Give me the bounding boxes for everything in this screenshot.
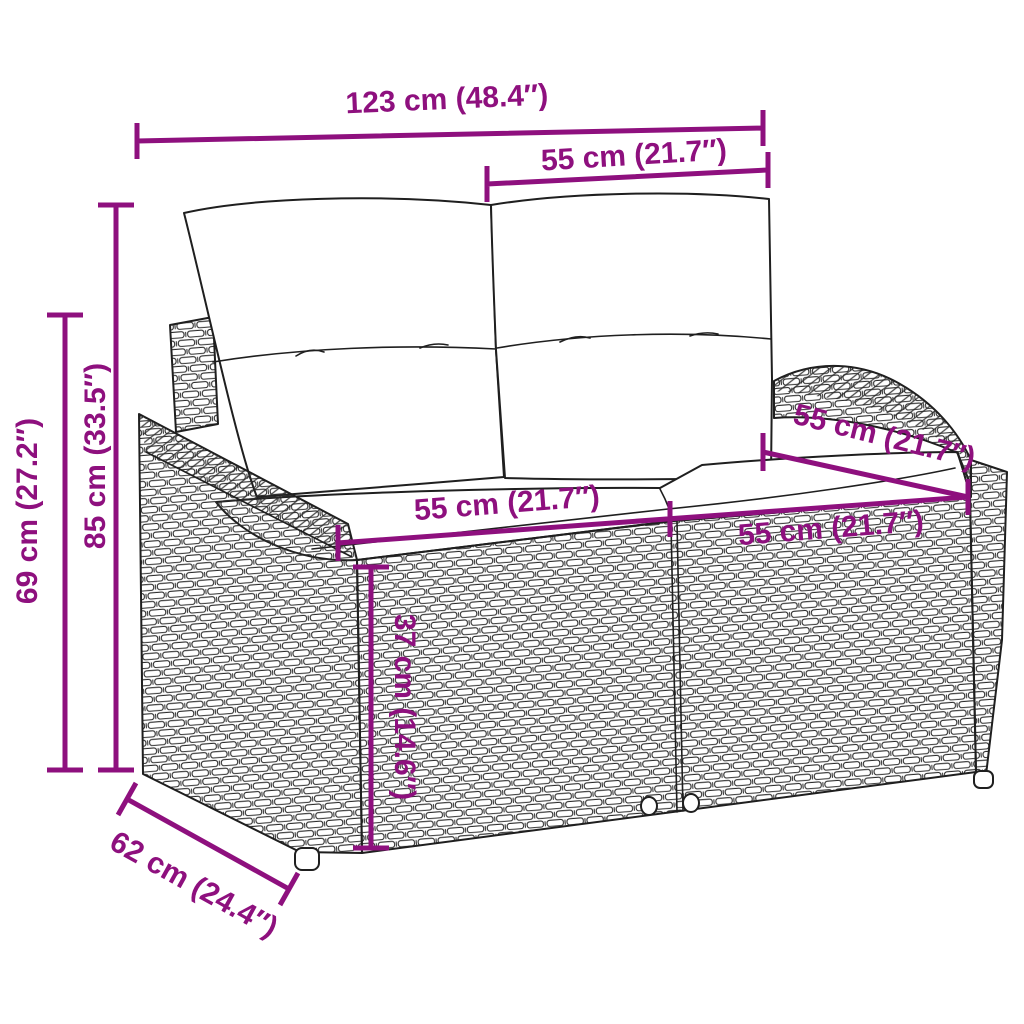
dim-seat-height-label: 37 cm (14.6″): [388, 614, 421, 800]
sofa-dimension-diagram: 123 cm (48.4″) 55 cm (21.7″) 85 cm (33.5…: [0, 0, 1024, 1024]
dim-armrest-height-line: [47, 315, 83, 770]
dim-armrest-height: 69 cm (27.2″): [11, 315, 83, 770]
dim-total-height: 85 cm (33.5″): [79, 205, 134, 770]
dim-total-height-label: 85 cm (33.5″): [79, 363, 112, 549]
sofa-foot-mid-left: [641, 797, 657, 815]
sofa-foot-mid-right: [683, 794, 699, 812]
backrest-frame-post: [170, 317, 218, 432]
dim-seat-depth-label: 62 cm (24.4″): [104, 825, 283, 944]
sofa-foot-right: [974, 771, 993, 788]
base-front-panel: [357, 497, 976, 853]
dim-overall-width-label: 123 cm (48.4″): [345, 79, 549, 121]
dim-armrest-height-label: 69 cm (27.2″): [11, 418, 44, 604]
dim-backrest-width: 55 cm (21.7″): [487, 133, 768, 202]
dimension-diagram-page: 123 cm (48.4″) 55 cm (21.7″) 85 cm (33.5…: [0, 0, 1024, 1024]
base-right-face: [970, 460, 1007, 775]
sofa-foot-left: [295, 848, 319, 870]
